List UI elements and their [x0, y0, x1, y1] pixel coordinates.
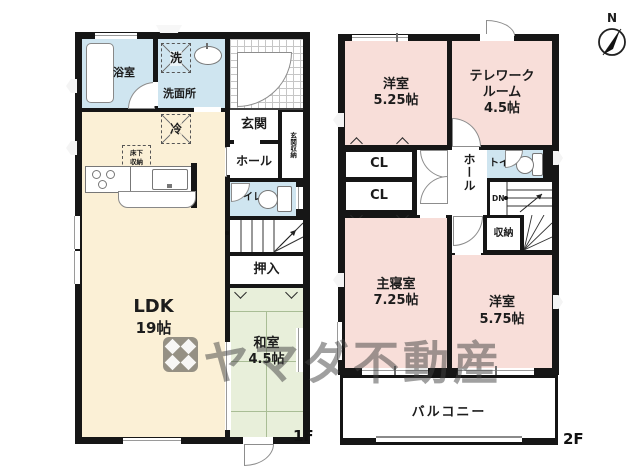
tatami-line [230, 411, 303, 412]
dn-label: DN [492, 194, 505, 203]
balcony-wall [340, 438, 376, 445]
burner-icon [98, 180, 107, 189]
wall-gap [243, 437, 273, 444]
window [352, 35, 408, 41]
closet-cl1: CL [346, 152, 412, 177]
master-size-label: 7.25帖 [373, 293, 418, 309]
cl2-label: CL [370, 188, 388, 204]
telework-label-1: テレワーク [469, 69, 534, 85]
burner-icon [92, 170, 101, 179]
yoshitsu-575-label: 洋室 [489, 295, 515, 311]
entrance-label: 玄関 [241, 117, 267, 133]
sink-icon [194, 46, 222, 65]
washer-box: 洗 [161, 43, 191, 73]
closet-cl2: CL [346, 182, 412, 210]
storage-label: 収納 [494, 228, 514, 241]
window [72, 251, 80, 284]
underfloor-label-1: 床下 [130, 149, 143, 157]
toilet-bowl-icon [258, 190, 278, 209]
vent [333, 273, 344, 287]
window [95, 33, 137, 39]
cl1-label: CL [370, 156, 388, 172]
toilet-tank-icon [277, 186, 292, 212]
door-arc [244, 444, 274, 466]
balcony-wall [522, 438, 558, 445]
washroom-label: 洗面所 [163, 87, 196, 101]
up-dot [225, 231, 229, 235]
window-tick [396, 33, 398, 42]
room-yoshitsu-525: 洋室 5.25帖 [345, 41, 447, 145]
wall [412, 148, 417, 212]
room-oshiire: 押入 [230, 256, 303, 284]
ldk-size-label: 19帖 [136, 319, 172, 338]
ldk-label: LDK [133, 296, 173, 319]
yoshitsu-525-size-label: 5.25帖 [373, 93, 418, 109]
oshiire-label: 押入 [253, 262, 279, 278]
wall [447, 41, 452, 150]
fridge-box: 冷 [161, 114, 191, 144]
vent [333, 113, 344, 127]
window [296, 187, 303, 209]
floor-plan-image: 浴室 洗 洗面所 玄関 玄関収納 ホール トイレ UP [0, 0, 640, 469]
floor2-label: 2F [563, 430, 584, 448]
washer-label: 洗 [170, 51, 182, 66]
north-arrow-icon [595, 25, 629, 59]
stairs-winder [524, 215, 552, 250]
balcony-label-group: バルコニー [340, 398, 558, 428]
underfloor-label-2: 収納 [130, 158, 143, 166]
vent [553, 151, 563, 165]
hall-2f-label: ホール [461, 153, 476, 213]
bathtub-icon [86, 43, 114, 103]
kitchen-faucet-icon [167, 184, 172, 188]
burner-icon [106, 170, 115, 179]
north-label: N [607, 11, 617, 25]
vent [553, 295, 563, 309]
room-storage: 収納 [487, 218, 520, 250]
floor1-label: 1F [293, 427, 314, 445]
room-entrance: 玄関 [230, 110, 278, 140]
vent [66, 141, 77, 155]
room-hall-1f: ホール [230, 144, 278, 178]
window [123, 438, 181, 445]
bathroom-label: 浴室 [113, 66, 135, 80]
telework-label-2: ルーム [483, 85, 522, 101]
brand-logo-icon [163, 337, 198, 372]
dn-dot [504, 196, 508, 200]
yoshitsu-525-label: 洋室 [383, 77, 409, 93]
stairs-up [230, 220, 303, 252]
sink-faucet-icon [206, 43, 208, 49]
wall-gap [420, 210, 446, 218]
hall-1f-label: ホール [236, 154, 272, 169]
entrance-storage: 玄関収納 [282, 112, 303, 178]
balcony-rail-line [376, 436, 522, 438]
fridge-label: 冷 [170, 122, 182, 137]
telework-size-label: 4.5帖 [484, 101, 520, 117]
counter-front [118, 191, 196, 208]
wall-gap [480, 34, 514, 41]
window [72, 216, 80, 249]
yoshitsu-575-size-label: 5.75帖 [479, 312, 524, 328]
vent [156, 25, 182, 33]
vent [66, 79, 77, 93]
master-label: 主寝室 [376, 277, 415, 293]
watermark-brand: ヤマダ不動産 [203, 327, 503, 393]
entrance-storage-label: 玄関収納 [288, 132, 296, 158]
balcony-label: バルコニー [412, 405, 487, 421]
